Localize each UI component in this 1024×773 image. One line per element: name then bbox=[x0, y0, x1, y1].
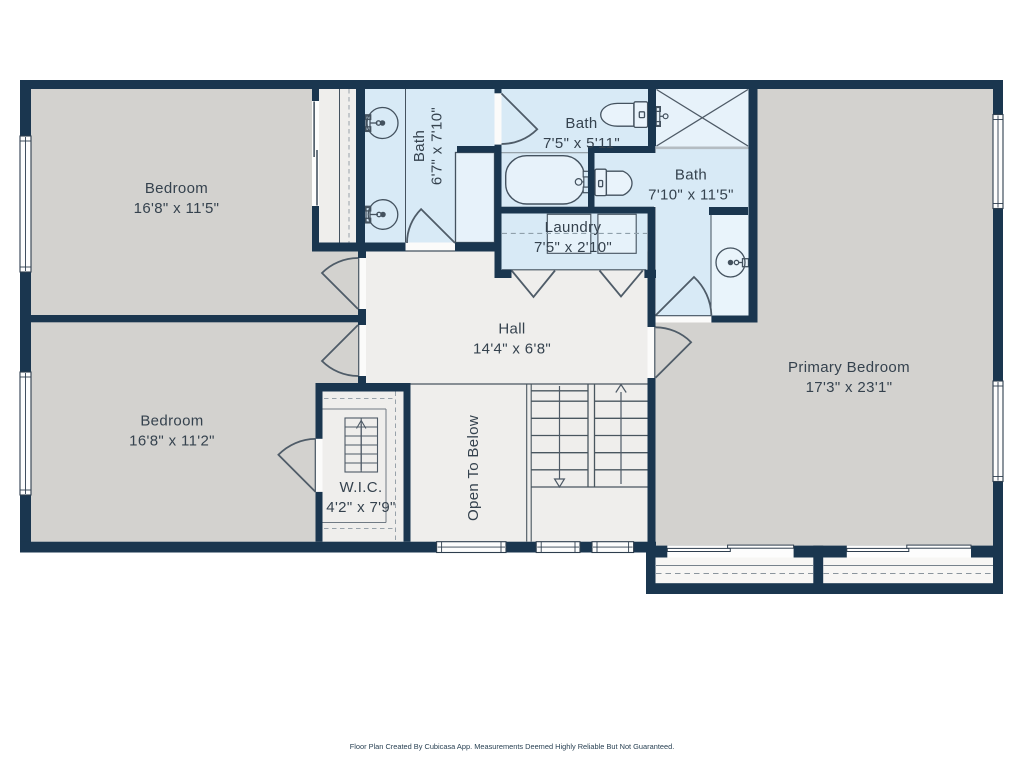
svg-text:6'7" x 7'10": 6'7" x 7'10" bbox=[429, 107, 446, 185]
svg-text:7'5" x 5'11": 7'5" x 5'11" bbox=[543, 135, 620, 152]
svg-text:Laundry: Laundry bbox=[545, 219, 602, 236]
svg-text:Primary Bedroom: Primary Bedroom bbox=[788, 359, 910, 376]
svg-text:7'5" x 2'10": 7'5" x 2'10" bbox=[534, 239, 612, 256]
svg-text:16'8" x 11'2": 16'8" x 11'2" bbox=[129, 432, 215, 449]
svg-text:4'2" x 7'9": 4'2" x 7'9" bbox=[326, 499, 395, 516]
svg-text:W.I.C.: W.I.C. bbox=[340, 479, 383, 496]
svg-text:7'10" x 11'5": 7'10" x 11'5" bbox=[648, 186, 734, 203]
svg-text:16'8" x 11'5": 16'8" x 11'5" bbox=[134, 200, 220, 217]
svg-text:Open To Below: Open To Below bbox=[465, 415, 482, 521]
svg-text:14'4" x 6'8": 14'4" x 6'8" bbox=[473, 340, 551, 357]
svg-text:Floor Plan Created By Cubicasa: Floor Plan Created By Cubicasa App. Meas… bbox=[350, 742, 675, 751]
svg-text:Bedroom: Bedroom bbox=[145, 180, 208, 197]
svg-text:Bedroom: Bedroom bbox=[140, 413, 203, 430]
svg-text:Bath: Bath bbox=[565, 115, 597, 132]
svg-text:Bath: Bath bbox=[675, 167, 707, 184]
svg-text:Hall: Hall bbox=[498, 321, 525, 338]
svg-text:Bath: Bath bbox=[411, 130, 428, 162]
svg-text:17'3" x 23'1": 17'3" x 23'1" bbox=[806, 379, 893, 396]
